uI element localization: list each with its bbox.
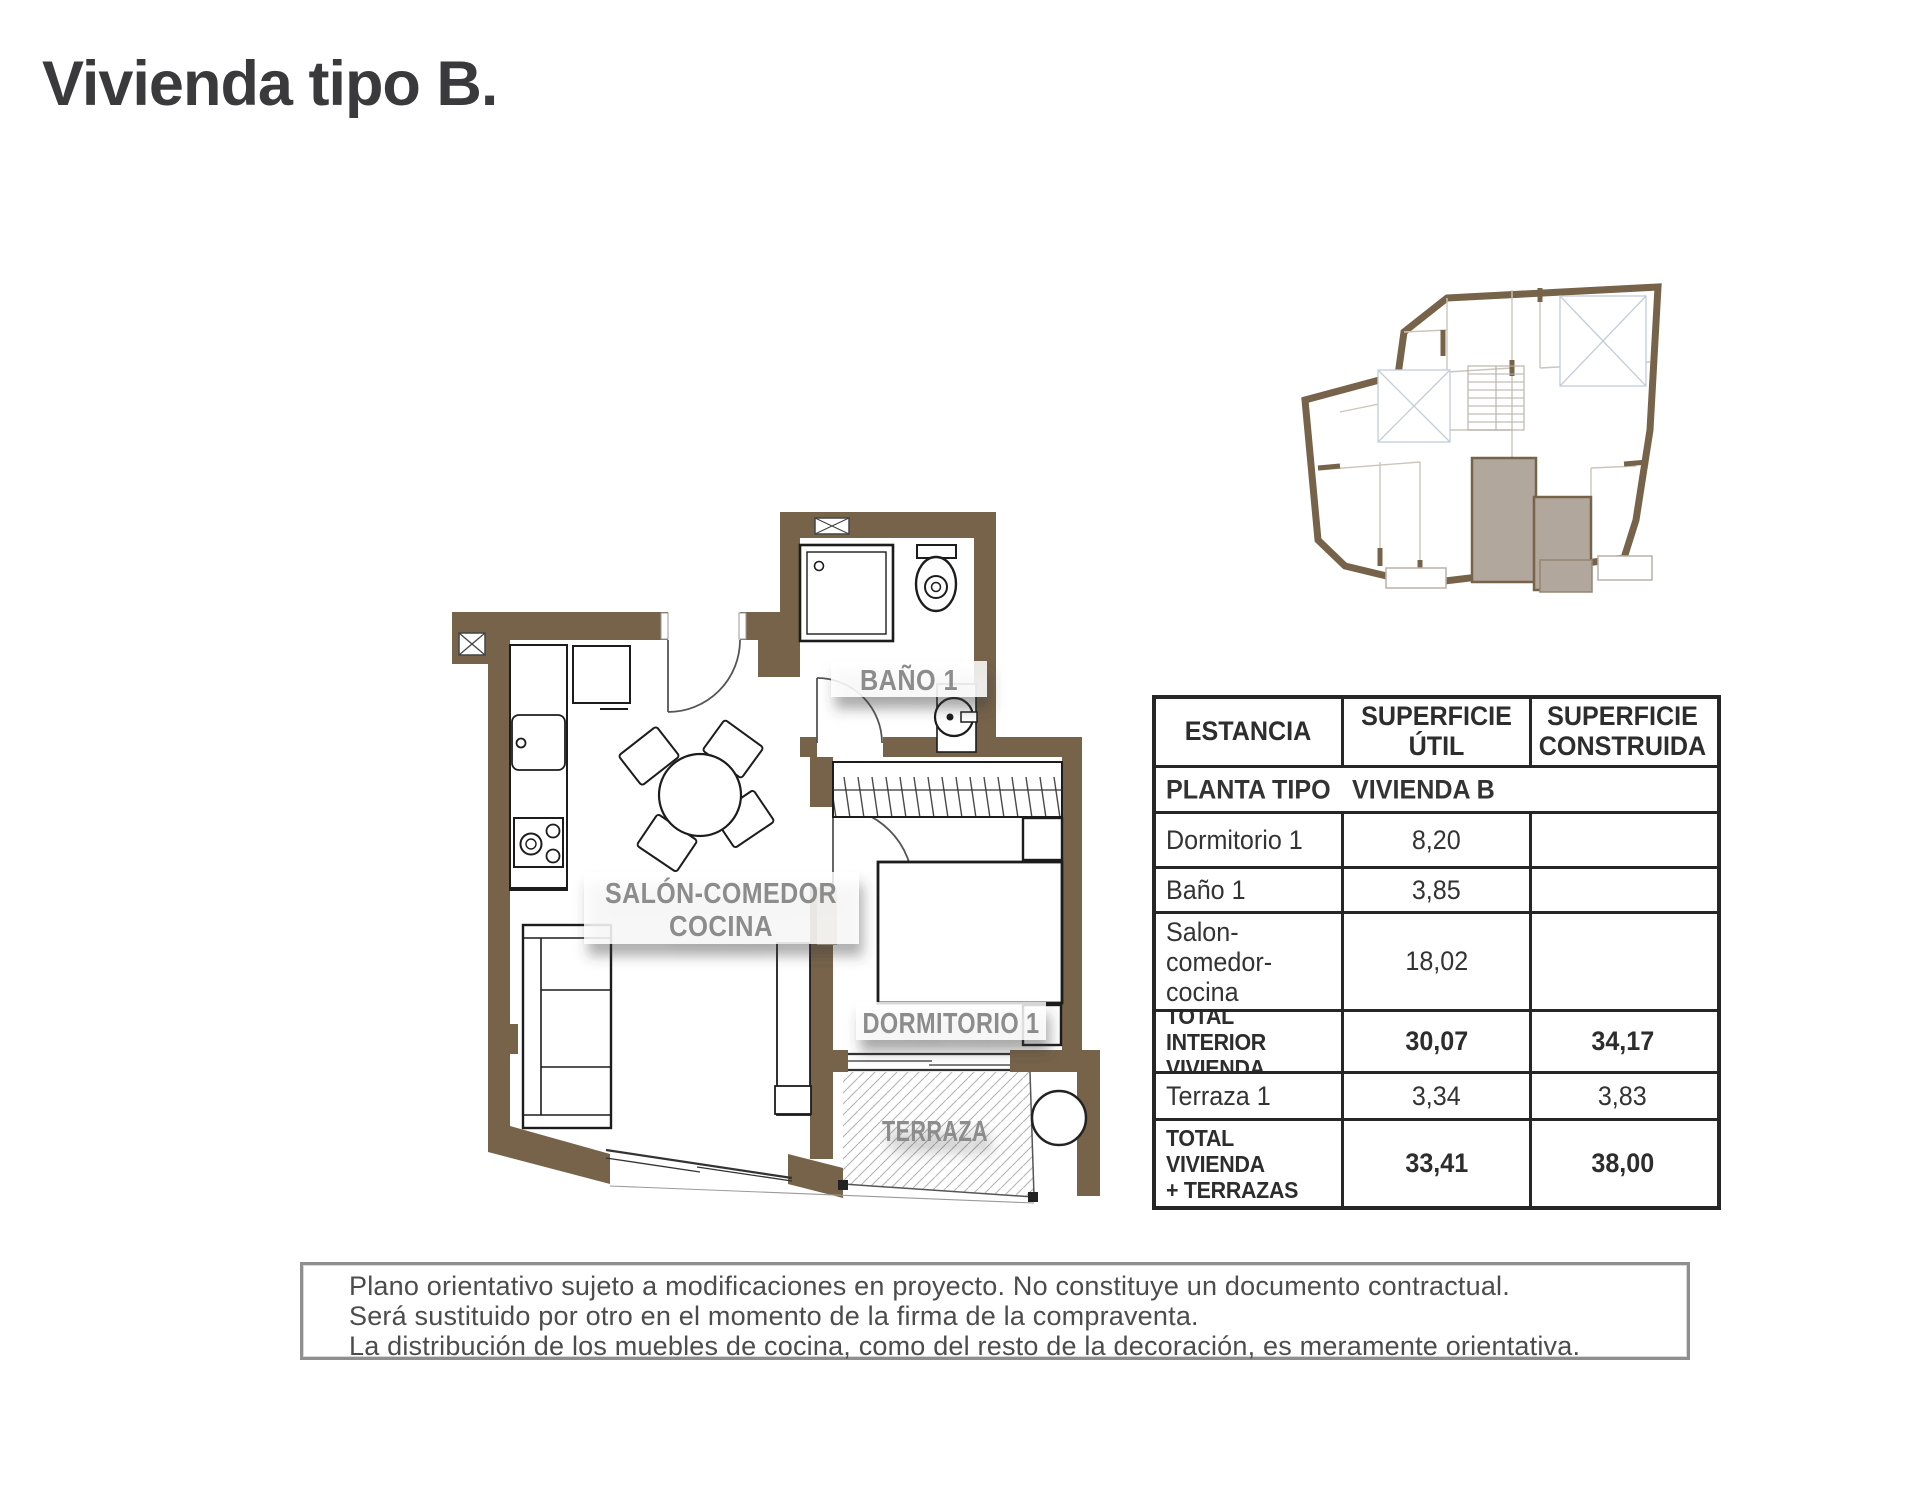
cell-estancia: TOTAL VIVIENDA + TERRAZAS <box>1156 1121 1341 1206</box>
door-jambs <box>661 613 746 639</box>
table-row-total-vivienda: TOTAL VIVIENDA + TERRAZAS 33,41 38,00 <box>1156 1118 1717 1206</box>
bathroom-fixtures <box>800 545 977 752</box>
table-row: Terraza 1 3,34 3,83 <box>1156 1071 1717 1118</box>
room-label-salon: SALÓN-COMEDOR COCINA <box>584 872 859 944</box>
cell-util: 18,02 <box>1341 914 1529 1009</box>
cell-util: 8,20 <box>1341 814 1529 866</box>
table-row: Salon-comedor-cocina 18,02 <box>1156 911 1717 1009</box>
cell-construida <box>1529 914 1713 1009</box>
svg-text:DORMITORIO 1: DORMITORIO 1 <box>863 1008 1040 1040</box>
cell-util: 30,07 <box>1341 1012 1529 1071</box>
svg-text:BAÑO 1: BAÑO 1 <box>860 663 958 697</box>
disclaimer-line: La distribución de los muebles de cocina… <box>349 1331 1677 1361</box>
cell-estancia: Dormitorio 1 <box>1156 814 1341 866</box>
table-row: Baño 1 3,85 <box>1156 866 1717 911</box>
cell-estancia: Baño 1 <box>1156 869 1341 911</box>
sink-icon <box>512 715 565 770</box>
header-superficie-construida: SUPERFICIE CONSTRUIDA <box>1529 699 1713 765</box>
room-label-terraza: TERRAZA <box>882 1116 988 1148</box>
dining-set <box>618 720 774 873</box>
floor-plan: SALÓN-COMEDOR COCINA BAÑO 1 DORMITORIO 1… <box>452 512 1100 1203</box>
cell-util: 33,41 <box>1341 1121 1529 1206</box>
header-estancia: ESTANCIA <box>1156 699 1341 765</box>
cell-util: 3,85 <box>1341 869 1529 911</box>
svg-text:COCINA: COCINA <box>669 911 773 943</box>
room-label-bano: BAÑO 1 <box>831 661 987 697</box>
table-header-row: ESTANCIA SUPERFICIE ÚTIL SUPERFICIE CONS… <box>1156 699 1717 765</box>
svg-text:TERRAZA: TERRAZA <box>882 1116 988 1148</box>
area-table: ESTANCIA SUPERFICIE ÚTIL SUPERFICIE CONS… <box>1152 695 1721 1210</box>
table-subheader-row: PLANTA TIPO VIVIENDA B <box>1156 765 1717 811</box>
cell-estancia: TOTAL INTERIOR VIVIENDA <box>1156 1012 1341 1071</box>
sofa-icon <box>523 925 611 1128</box>
nightstand-icon <box>1023 818 1062 860</box>
header-superficie-util: SUPERFICIE ÚTIL <box>1341 699 1529 765</box>
disclaimer-box: Plano orientativo sujeto a modificacione… <box>300 1262 1690 1360</box>
disclaimer-line: Será sustituido por otro en el momento d… <box>349 1301 1677 1331</box>
cell-construida <box>1529 814 1713 866</box>
bed-icon <box>878 862 1062 1003</box>
planta-tipo-cell: PLANTA TIPO VIVIENDA B <box>1156 768 1713 811</box>
cell-construida: 38,00 <box>1529 1121 1713 1206</box>
cell-construida: 34,17 <box>1529 1012 1713 1071</box>
cell-construida: 3,83 <box>1529 1074 1713 1118</box>
table-row: Dormitorio 1 8,20 <box>1156 811 1717 866</box>
kitchen-units <box>510 645 630 890</box>
cell-util: 3,34 <box>1341 1074 1529 1118</box>
window-box-icon <box>459 633 485 655</box>
table-icon <box>659 754 741 836</box>
table-row-total-interior: TOTAL INTERIOR VIVIENDA 30,07 34,17 <box>1156 1009 1717 1071</box>
cell-estancia: Terraza 1 <box>1156 1074 1341 1118</box>
terrace-table-icon <box>1032 1091 1086 1145</box>
cell-estancia: Salon-comedor-cocina <box>1156 914 1341 1009</box>
vent-box-icon <box>815 518 849 534</box>
cell-construida <box>1529 869 1713 911</box>
terrace <box>610 1072 1086 1203</box>
room-label-dormitorio: DORMITORIO 1 <box>856 1002 1046 1040</box>
key-plan <box>1305 287 1658 592</box>
disclaimer-line: Plano orientativo sujeto a modificacione… <box>349 1271 1677 1301</box>
svg-text:SALÓN-COMEDOR: SALÓN-COMEDOR <box>605 876 837 910</box>
plan-sheet: { "page": { "title": "Vivienda tipo B." … <box>0 0 1920 1493</box>
living-furniture <box>523 925 811 1128</box>
